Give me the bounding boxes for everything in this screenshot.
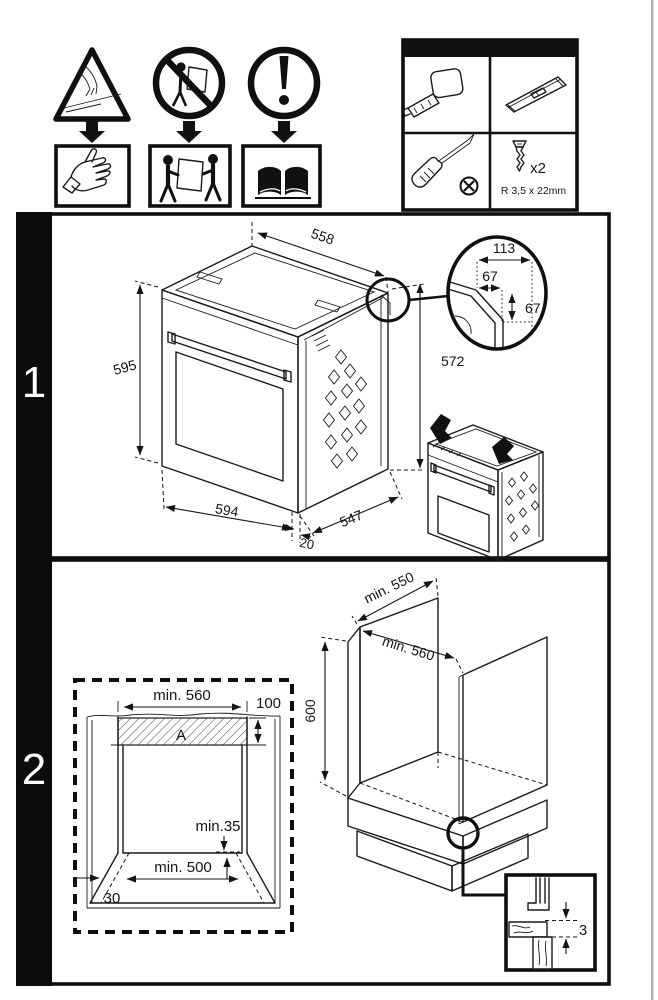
step2-number: 2 — [22, 745, 46, 794]
dim-vent-height: 100 — [256, 695, 281, 712]
dim-plinth-depth: 30 — [104, 890, 121, 907]
manual-artwork: x2 R 3,5 x 22mm 1 2 — [0, 0, 658, 1000]
two-person-carry-icon — [150, 146, 230, 206]
page-edge — [651, 0, 654, 1000]
sharp-edge-cut-warning-icon — [56, 50, 128, 119]
wear-gloves-icon — [56, 146, 129, 206]
attention-icon — [251, 50, 317, 116]
dim-cabinet-height: 600 — [302, 699, 318, 723]
step-number-bar — [16, 212, 52, 986]
screw-spec: R 3,5 x 22mm — [501, 185, 567, 197]
arrow-down-icon — [79, 121, 297, 143]
dim-base-width: min. 500 — [154, 859, 212, 876]
dim-rear-height: 572 — [441, 353, 465, 369]
screw-quantity: x2 — [530, 160, 546, 177]
tools-box-header — [403, 40, 577, 57]
dim-detail-width: 113 — [493, 240, 516, 256]
required-tools-box: x2 R 3,5 x 22mm — [403, 40, 577, 210]
dim-rear-gap: 3 — [579, 922, 587, 939]
safety-icons — [56, 50, 320, 206]
dim-front-lip: 20 — [298, 535, 315, 553]
read-manual-icon — [243, 146, 320, 206]
step1-number: 1 — [22, 358, 46, 407]
step1-frame — [18, 214, 609, 558]
dim-detail-offset-width: 67 — [482, 268, 498, 284]
dim-niche-width: min. 560 — [153, 687, 211, 704]
no-single-person-carry-icon — [156, 50, 222, 116]
manual-page: x2 R 3,5 x 22mm 1 2 — [0, 0, 658, 1000]
vent-label: A — [176, 727, 186, 744]
dim-detail-offset-height: 67 — [525, 300, 541, 316]
rear-gap-detail-inset: 3 — [506, 875, 595, 970]
dim-base-clearance: min.35 — [195, 818, 240, 835]
